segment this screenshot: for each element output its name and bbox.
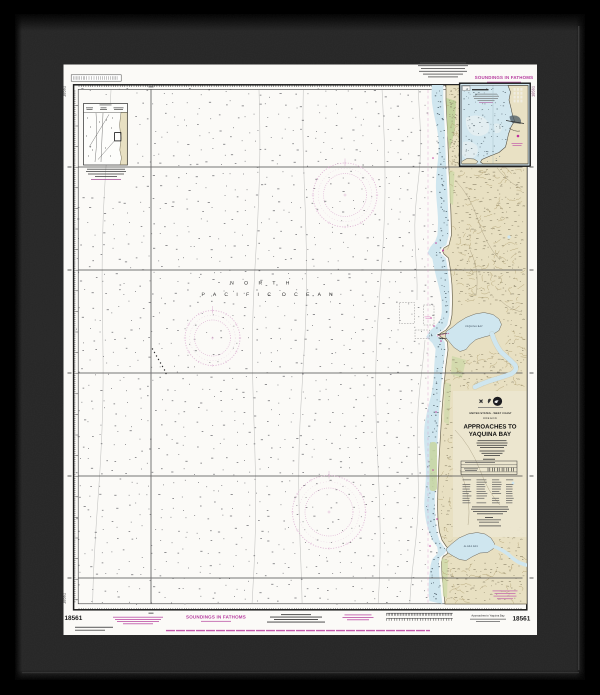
svg-text:18561: 18561: [513, 616, 531, 623]
svg-text:APPROACHES TO: APPROACHES TO: [463, 423, 516, 430]
svg-text:18561: 18561: [65, 615, 83, 622]
svg-text:18561: 18561: [62, 85, 67, 97]
svg-text:18561: 18561: [62, 592, 67, 604]
svg-text:N O R T H: N O R T H: [230, 281, 294, 287]
svg-text:YAQUINA BAY: YAQUINA BAY: [465, 325, 483, 328]
svg-text:SOUNDINGS IN FATHOMS: SOUNDINGS IN FATHOMS: [475, 75, 534, 80]
svg-text:P A C I F I C: P A C I F I C: [202, 292, 275, 298]
svg-text:18561: 18561: [531, 85, 536, 97]
svg-text:OREGON: OREGON: [483, 417, 497, 420]
svg-text:YAQUINA BAY: YAQUINA BAY: [469, 431, 511, 438]
svg-text:UNITED STATES - WEST COAST: UNITED STATES - WEST COAST: [469, 412, 511, 415]
svg-text:Approaches to Yaquina Bay: Approaches to Yaquina Bay: [471, 615, 504, 618]
svg-text:SOUNDINGS IN FATHOMS: SOUNDINGS IN FATHOMS: [186, 615, 246, 620]
svg-text:O C E A N: O C E A N: [282, 292, 336, 298]
svg-text:ALSEA BAY: ALSEA BAY: [464, 545, 479, 548]
